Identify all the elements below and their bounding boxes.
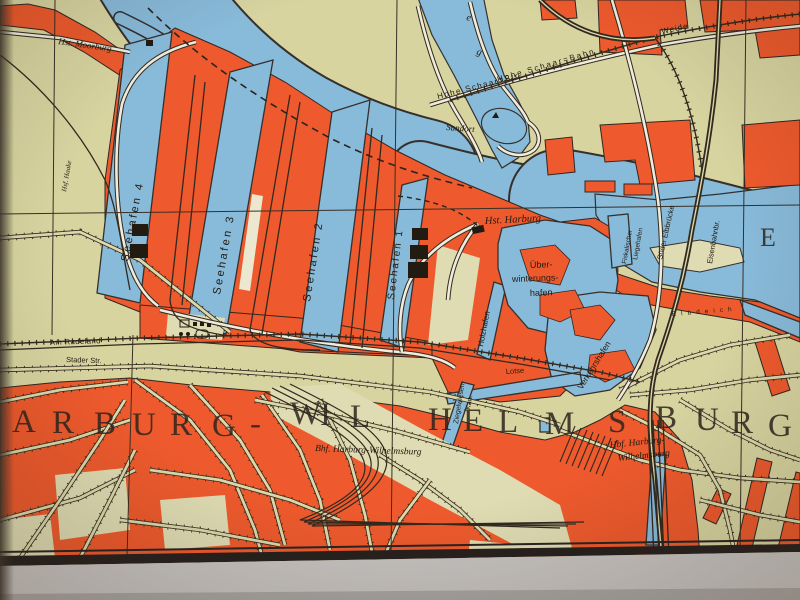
harbor-map-svg: Hst. Moorburg Hsf. Haake Seehafen 4 Seeh… [0, 0, 800, 600]
photo-vignette [0, 0, 800, 600]
map-photo: Hst. Moorburg Hsf. Haake Seehafen 4 Seeh… [0, 0, 800, 600]
